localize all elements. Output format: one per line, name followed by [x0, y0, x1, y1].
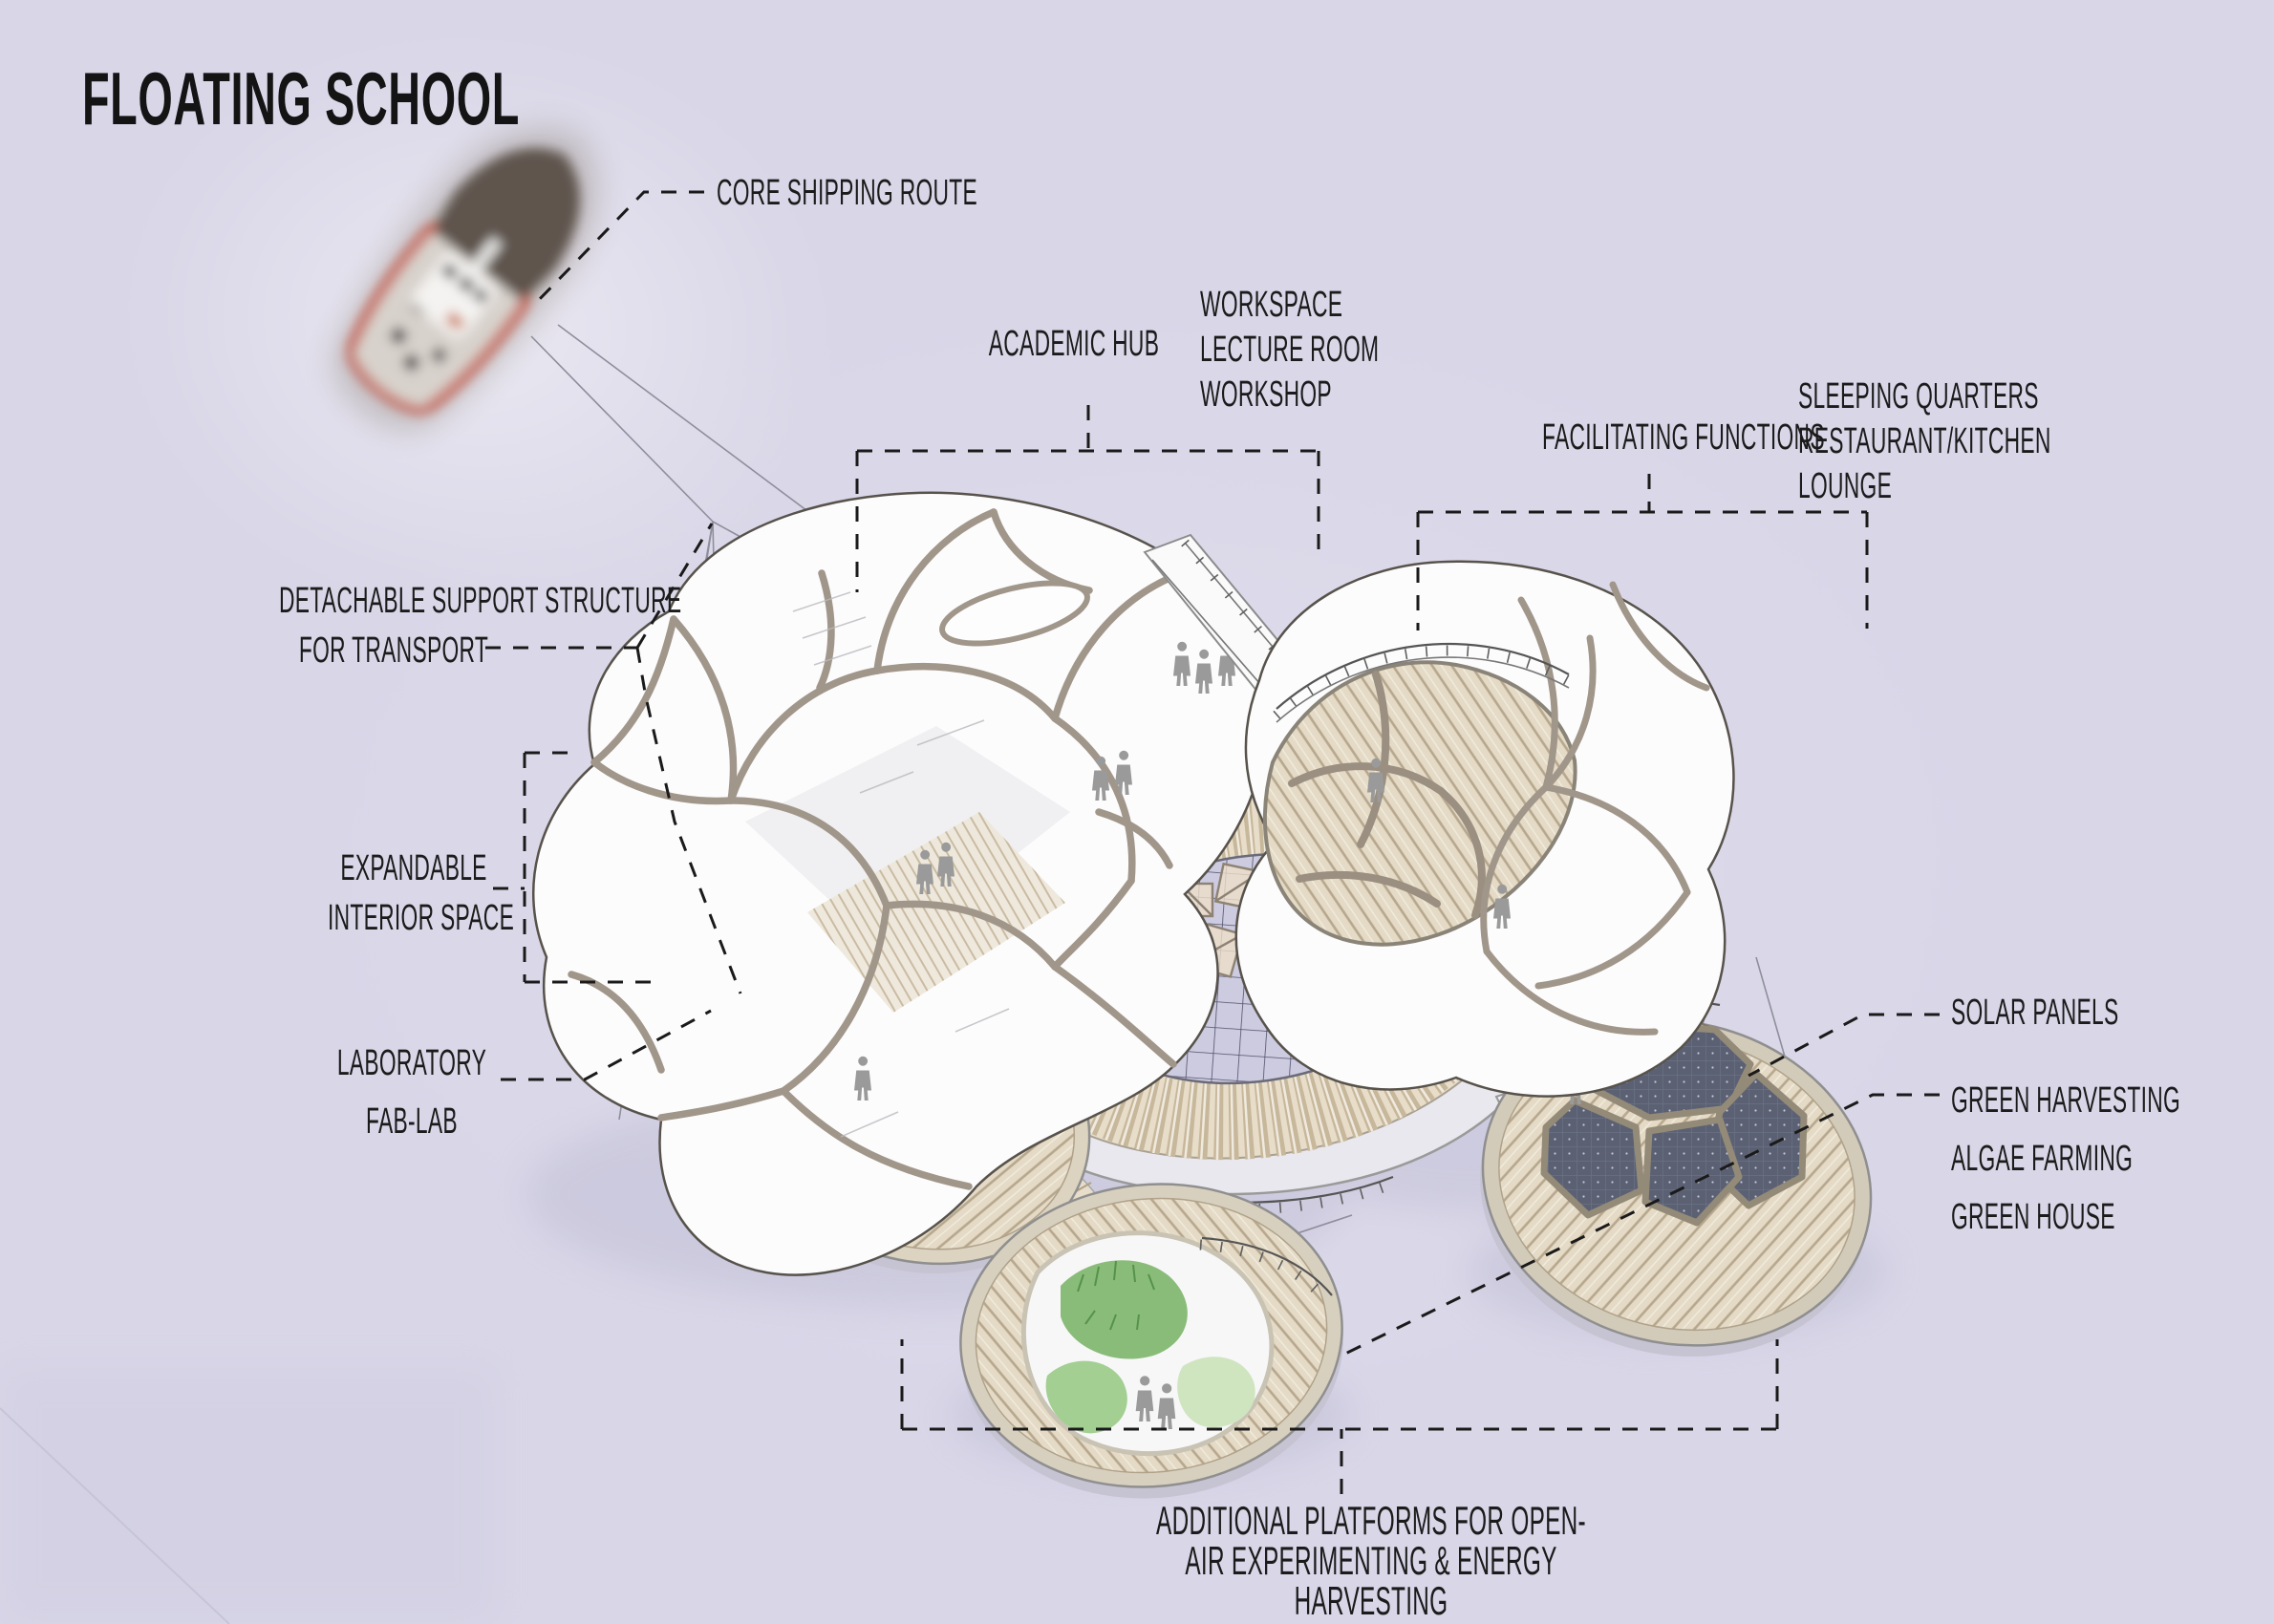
facilitating-item-lounge: LOUNGE: [1798, 464, 2051, 509]
laboratory-line2: FAB-LAB: [326, 1093, 498, 1151]
bottom-caption: ADDITIONAL PLATFORMS FOR OPEN-AIR EXPERI…: [1149, 1501, 1593, 1621]
detachable-line2: FOR TRANSPORT: [279, 626, 508, 675]
expandable-line1: EXPANDABLE: [328, 844, 500, 893]
label-green-functions: GREEN HARVESTING ALGAE FARMING GREEN HOU…: [1951, 1072, 2180, 1247]
laboratory-line1: LABORATORY: [326, 1035, 498, 1093]
label-solar-panels: SOLAR PANELS: [1951, 994, 2119, 1031]
facilitating-item-sleeping-quarters: SLEEPING QUARTERS: [1798, 374, 2051, 419]
label-facilitating-items: SLEEPING QUARTERS RESTAURANT/KITCHEN LOU…: [1798, 374, 2051, 509]
diagram-canvas: [0, 0, 2274, 1624]
label-facilitating-functions: FACILITATING FUNCTIONS: [1542, 419, 1743, 456]
academic-item-workspace: WORKSPACE: [1200, 283, 1379, 328]
academic-item-workshop: WORKSHOP: [1200, 373, 1379, 417]
green-item-harvesting: GREEN HARVESTING: [1951, 1072, 2180, 1130]
label-academic-hub: ACADEMIC HUB: [988, 326, 1160, 362]
label-laboratory: LABORATORY FAB-LAB: [326, 1035, 498, 1151]
academic-item-lecture-room: LECTURE ROOM: [1200, 328, 1379, 373]
facilitating-item-restaurant-kitchen: RESTAURANT/KITCHEN: [1798, 419, 2051, 464]
label-expandable-interior: EXPANDABLE INTERIOR SPACE: [328, 844, 500, 943]
label-detachable-support: DETACHABLE SUPPORT STRUCTURE FOR TRANSPO…: [279, 576, 508, 675]
label-core-shipping-route: CORE SHIPPING ROUTE: [717, 175, 977, 211]
page-title: FLOATING SCHOOL: [82, 61, 520, 136]
floating-school-diagram: FLOATING SCHOOL CORE SHIPPING ROUTE ACAD…: [0, 0, 2274, 1624]
detachable-line1: DETACHABLE SUPPORT STRUCTURE: [279, 576, 508, 626]
facilitating-pod: [1236, 562, 1734, 1097]
expandable-line2: INTERIOR SPACE: [328, 893, 500, 943]
label-academic-hub-items: WORKSPACE LECTURE ROOM WORKSHOP: [1200, 283, 1379, 417]
green-item-algae-farming: ALGAE FARMING: [1951, 1130, 2180, 1188]
green-item-green-house: GREEN HOUSE: [1951, 1188, 2180, 1247]
